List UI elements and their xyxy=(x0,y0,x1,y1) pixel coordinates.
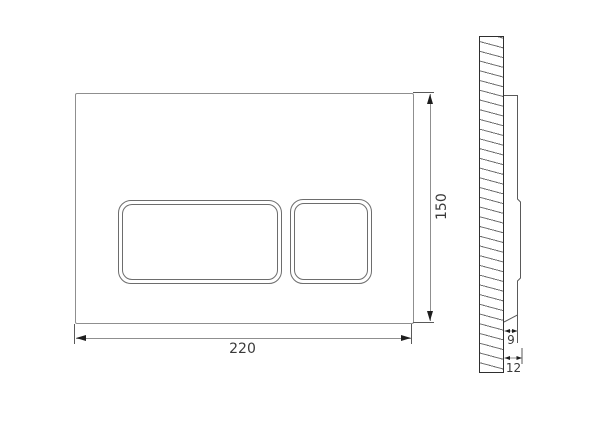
plate-width-label: 220 xyxy=(180,342,305,356)
plate-profile-path xyxy=(504,96,521,323)
width-extension-line-left xyxy=(74,324,75,344)
width-arrow-right-icon xyxy=(401,335,411,341)
height-extension-line-top xyxy=(413,92,434,93)
small-flush-button xyxy=(290,199,372,284)
plate-height-label: 150 xyxy=(435,185,449,229)
height-arrow-up-icon xyxy=(427,94,433,104)
height-arrow-down-icon xyxy=(427,311,433,321)
plate-depth-label: 9 xyxy=(503,334,519,346)
width-dimension-line xyxy=(76,338,411,339)
large-flush-button-inner-ring xyxy=(122,204,278,280)
total-depth-label: 12 xyxy=(504,362,523,374)
depth12-arrow-left-icon xyxy=(505,356,511,360)
depth12-arrow-right-icon xyxy=(517,356,523,360)
large-flush-button xyxy=(118,200,282,284)
width-arrow-left-icon xyxy=(76,335,86,341)
height-extension-line-bottom xyxy=(413,322,434,323)
width-extension-line-right xyxy=(411,324,412,344)
height-dimension-line xyxy=(430,94,431,321)
technical-drawing-canvas: { "drawing": { "dimensions": { "plate_wi… xyxy=(0,0,600,434)
small-flush-button-inner-ring xyxy=(294,203,368,280)
